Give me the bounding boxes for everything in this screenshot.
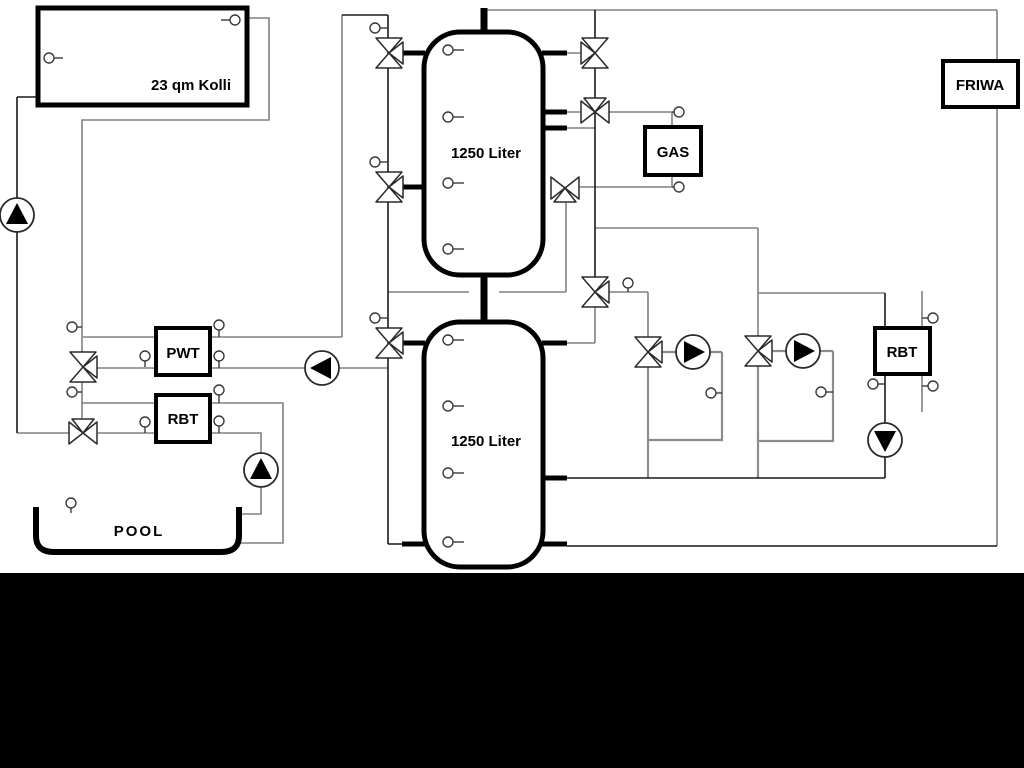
hydraulic-diagram: 23 qm Kolli 1250 Liter 1250 Liter GAS FR… bbox=[0, 0, 1024, 768]
gas-label: GAS bbox=[657, 144, 690, 161]
friwa-label: FRIWA bbox=[956, 77, 1004, 94]
schematic-canvas: 23 qm Kolli 1250 Liter 1250 Liter GAS FR… bbox=[0, 0, 1024, 768]
pump-icon bbox=[244, 453, 278, 487]
pump-icon bbox=[305, 351, 339, 385]
tank2-label: 1250 Liter bbox=[451, 433, 521, 450]
pool-label: POOL bbox=[114, 523, 165, 540]
pump-icon bbox=[868, 423, 902, 457]
rbt-right-label: RBT bbox=[887, 344, 918, 361]
footer-band bbox=[0, 573, 1024, 768]
tank1-label: 1250 Liter bbox=[451, 145, 521, 162]
collector-label: 23 qm Kolli bbox=[151, 77, 231, 94]
pump-icon bbox=[0, 198, 34, 232]
pwt-label: PWT bbox=[166, 345, 199, 362]
pump-icon bbox=[786, 334, 820, 368]
rbt-left-label: RBT bbox=[168, 411, 199, 428]
pump-icon bbox=[676, 335, 710, 369]
